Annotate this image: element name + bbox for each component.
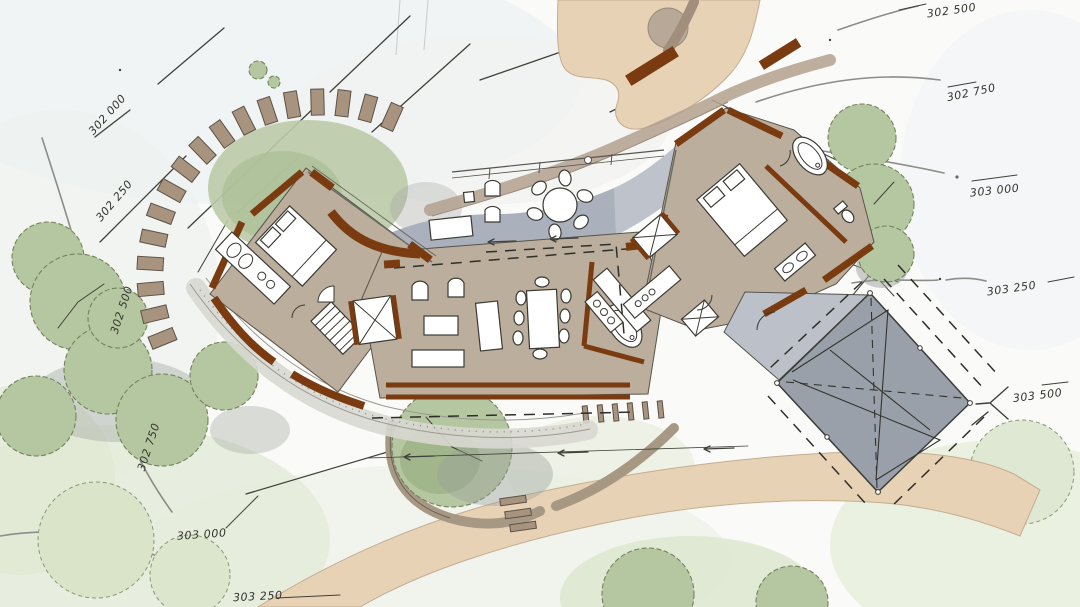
tree [828,104,896,172]
lounge-chair [485,206,500,222]
site-plan-drawing: 302 500 302 750 303 000 303 250 303 500 … [0,0,1080,607]
svg-text:302 500: 302 500 [926,1,977,21]
lounge-chair [485,180,500,196]
terrace-table [429,216,473,240]
armchair [412,281,428,300]
svg-text:303 250: 303 250 [233,589,283,605]
tree [0,376,76,456]
stepping-stone [335,90,351,117]
bench [412,350,464,367]
elevation-label: 303 500 [972,382,1068,425]
stepping-stone [137,281,164,296]
stepping-stone [311,89,325,115]
svg-text:303 500: 303 500 [1012,386,1063,405]
armchair [448,278,464,297]
chaise [476,301,503,351]
stepping-stone [137,256,164,271]
coffee-table [424,316,458,335]
fireplace [348,295,402,345]
site-plan-svg: 302 500 302 750 303 000 303 250 303 500 … [0,0,1080,607]
elevation-label: 302 500 [899,1,977,21]
